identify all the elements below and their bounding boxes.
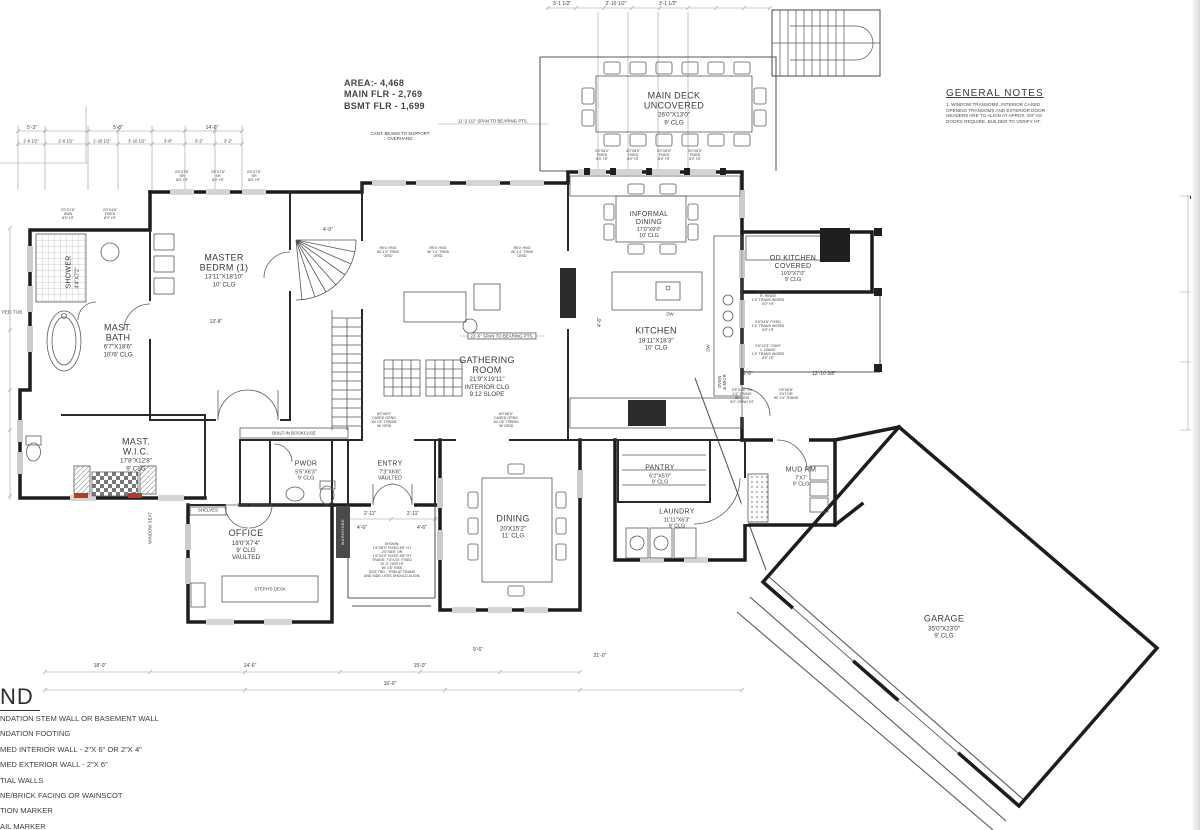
dim: 1'-10 1/2" — [93, 139, 111, 144]
dim: 2'-6 1/2" — [58, 139, 73, 144]
note-window-fixed-4: 3'0"X8'0" FIXED 8'0" HT — [688, 149, 702, 161]
room-label-main-deck: MAIN DECK UNCOVERED26'0"X13'0" 9' CLG — [644, 74, 704, 127]
note-window-fixed-1: 3'0"X8'0" FIXED 8'0" HT — [595, 149, 609, 161]
exterior-walls — [20, 172, 1157, 806]
dim: 3'-1 1/2" — [659, 1, 677, 7]
note-cased-opng-1: 8'0"X8'0" CASED OPNG W/ 1'6" TRNSM W/ GR… — [371, 412, 396, 428]
site-and-deck-lines — [348, 10, 1024, 830]
note-oven-micr: OVEN & MICR — [717, 374, 727, 389]
note-rev-hng-2: REV. HNG W/ 1'4" TRNS GRID — [427, 246, 449, 258]
room-label-mud-rm: MUD RM7'X7' 9' CLG — [786, 449, 817, 488]
sofa — [404, 292, 466, 322]
note-window-csmt-l: 2'6"X2'3" CSMT L. HINGE 1'4" TRANS W/GRD… — [752, 344, 784, 360]
note-cased-opng-2: 8'0"X8'0" CASED OPNG W/ 1'6" TRNSM W/ GR… — [493, 412, 518, 428]
area-summary: AREA:- 4,468 MAIN FLR - 2,769 BSMT FLR -… — [344, 78, 425, 112]
room-label-dining: DINING20'X15'2" 11' CLG — [496, 496, 529, 539]
note-stephs-desk: STEPH'S DESK — [254, 586, 286, 591]
room-label-mast-wic: MAST. W.I.C.17'8"X12'8" 9' CLG — [120, 420, 152, 473]
legend-item: MED EXTERIOR WALL - 2"X 6" — [0, 757, 159, 772]
note-cant-beams: CANT. BEAMS TO SUPPORT OVERHANG — [371, 131, 430, 141]
wic-island — [92, 472, 138, 496]
mud-bench — [748, 474, 768, 522]
note-bookcase: BUILT-IN BOOKCASE — [272, 430, 316, 435]
posts — [584, 168, 882, 372]
legend: ND NDATION STEM WALL OR BASEMENT WALL ND… — [0, 684, 159, 830]
dim: 4'-6" — [597, 317, 603, 327]
ottoman — [384, 360, 420, 396]
note-window-fixed-bath: 2'0"X4'6" FIXED 8'0" HT — [103, 208, 117, 220]
room-label-entry: ENTRY7'3"X6'8" VAULTED — [377, 443, 402, 482]
dim: 14'-6" — [244, 663, 257, 669]
room-label-informal-dining: INFORMAL DINING17'0"X9'0" 10' CLG — [630, 193, 669, 240]
general-note-1: 1. WINDOW TRANSOMS, INTERIOR CASED OPENI… — [946, 102, 1076, 125]
fireplace — [560, 268, 576, 318]
dim: 3'-2" — [195, 139, 203, 144]
room-label-shower: SHOWER4'4"X7'2" — [48, 255, 81, 288]
note-rev-hng-3: REV. HNG W/ 1'4" TRNS GRID — [511, 246, 533, 258]
dim: 4'-6" — [417, 525, 427, 531]
room-label-gathering-room: GATHERING ROOM21'9"X19'11" INTERIOR CLG … — [459, 338, 515, 398]
dim: 5'-3" — [27, 125, 37, 131]
grill — [820, 228, 850, 262]
note-dw-island: DW — [666, 311, 673, 316]
kitchen-island — [612, 272, 702, 310]
note-window-fixed-2: 3'0"X8'0" FIXED 8'0" HT — [626, 149, 640, 161]
note-window-sh-3: 2'6"X7'6" SH 8'0" HT — [247, 170, 261, 182]
note-ped-tub: PED. TUB — [2, 309, 22, 314]
room-label-laundry: LAUNDRY11'11"X6'3" 9' CLG — [659, 491, 694, 530]
note-rev-hng-1: REV. HNG W/ 1'4" TRNS GRID — [377, 246, 399, 258]
legend-item: AIL MARKER — [0, 819, 159, 830]
note-window-sh-1: 2'6"X7'6" SH 8'0" HT — [175, 170, 189, 182]
room-label-pwdr: PWDR5'5"X6'3" 9' CLG — [295, 443, 318, 482]
floor-plan-sheet: AREA:- 4,468 MAIN FLR - 2,769 BSMT FLR -… — [0, 0, 1200, 830]
ottoman — [426, 360, 462, 396]
room-label-pantry: PANTRY6'2"X5'0" 9' CLG — [645, 447, 675, 486]
dim: 13'-8" — [210, 319, 223, 325]
dim: 12'-10 3/8" — [812, 371, 836, 377]
note-ext-dr: 2'6"X6'8" EXT DR W/ 1'4" TRANS — [774, 388, 798, 400]
room-label-mast-bath: MAST. BATH6'7"X18'6" 10'/9' CLG — [103, 306, 132, 359]
general-notes-title: GENERAL NOTES — [946, 88, 1076, 99]
note-window-sh-2: 2'6"X7'6" SH 8'0" HT — [211, 170, 225, 182]
note-window-awn: 2'0"X1'6" AWN 8'0" HT — [61, 208, 75, 220]
dim: 2'-10 1/2" — [605, 1, 626, 7]
legend-item: TION MARKER — [0, 803, 159, 818]
general-notes: GENERAL NOTES 1. WINDOW TRANSOMS, INTERI… — [946, 88, 1076, 125]
room-label-master-bedrm: MASTER BEDRM (1)13'11"X18'10" 10' CLG — [200, 236, 249, 289]
legend-item: NDATION FOOTING — [0, 726, 159, 741]
page-edge-shadow — [1191, 0, 1200, 830]
room-label-office: OFFICE18'0"X7'4" 9' CLG VAULTED — [229, 511, 264, 561]
note-window-sh-right: 2'6"X4'6" SH 1'4" TRANS W/ GRID 8'0" OPN… — [730, 388, 753, 404]
room-label-garage: GARAGE35'0"X23'0" 9' CLG — [924, 596, 964, 639]
main-stairs — [296, 240, 362, 430]
dim: 2'-11" — [407, 511, 419, 517]
note-window-fixed-3: 3'0"X8'0" FIXED 8'0" HT — [657, 149, 671, 161]
dim: 5'-8" — [113, 125, 123, 131]
dim: 9'-6" — [473, 647, 483, 653]
dim: 21'-0" — [594, 653, 607, 659]
dim: 3'-10 1/2" — [128, 139, 146, 144]
note-dw-counter: DW — [705, 344, 710, 351]
note-wardrobe: WARDROBE — [340, 517, 346, 547]
legend-item: NE/BRICK FACING OR WAINSCOT — [0, 788, 159, 803]
dim: 4'-0" — [323, 227, 333, 233]
note-window-csmt-r: 2'6"X6'0" CSMT R. HINGE 1'4" TRANS W/GRD… — [752, 290, 784, 306]
dim: 3'-1 1/2" — [553, 1, 571, 7]
legend-item: TIAL WALLS — [0, 773, 159, 788]
legend-item: NDATION STEM WALL OR BASEMENT WALL — [0, 711, 159, 726]
dim: 18'-0" — [94, 663, 107, 669]
dim: 2'-0" — [743, 371, 753, 377]
note-shelves: SHELVES — [198, 507, 218, 512]
range — [628, 400, 666, 426]
note-window-fixed-r: 2'6"X4'6" FIXED 1'4" TRANS W/GRD 8'0" HT — [752, 320, 784, 332]
dim: 15'-0" — [414, 663, 427, 669]
dim: 3'-2" — [224, 139, 232, 144]
red-marker — [74, 493, 88, 498]
dim: 2'-6 1/2" — [23, 139, 38, 144]
dim: 16'-0" — [384, 681, 397, 687]
legend-title: ND — [0, 684, 40, 711]
legend-item: MED INTERIOR WALL - 2"X 6" OR 2"X 4" — [0, 742, 159, 757]
dim: 14'-0" — [206, 125, 219, 131]
room-label-od-kitchen: OD KITCHEN COVERED10'0"X7'0" 9' CLG — [770, 237, 816, 284]
dim: 2'-11" — [364, 511, 376, 517]
note-window-shown: SHOWN: 1'6"X8'0" FIXED 8'8" HT 2'6"X8'8"… — [364, 542, 421, 578]
note-span: 11'-2 1/2" SPAN TO BEARING PTS. — [458, 118, 528, 123]
dim: 4'-6" — [357, 525, 367, 531]
note-window-seat: WINDOW SEAT — [147, 512, 152, 544]
red-marker — [128, 493, 142, 498]
dim: 3'-8" — [164, 139, 172, 144]
deck-stairs — [772, 10, 880, 76]
note-span-gathering: 22'-6" SPAN TO BEARING PTS. — [467, 332, 536, 339]
